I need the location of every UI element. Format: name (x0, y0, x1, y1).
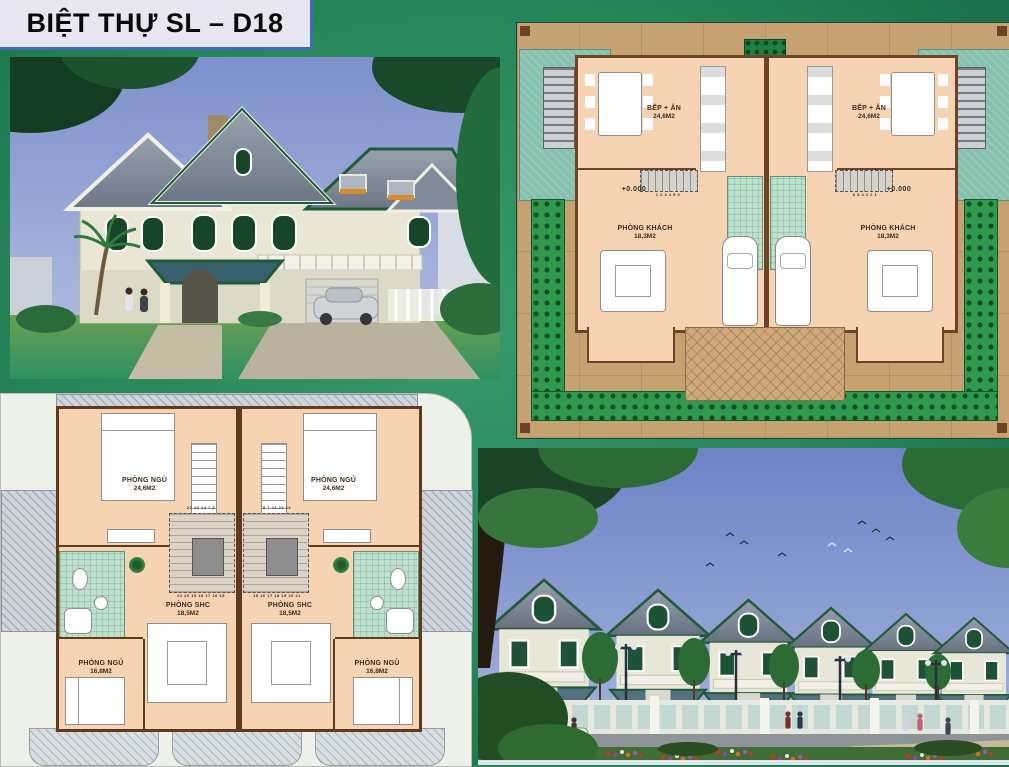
master-bedroom-label: PHÒNG NGỦ 24,6M2 (286, 473, 381, 497)
wall (335, 637, 419, 639)
sink-icon (370, 596, 384, 610)
villa-exterior-illustration (10, 57, 500, 379)
bathroom (59, 551, 125, 639)
garage-car-icon (775, 236, 811, 326)
roof-wing-right (417, 490, 473, 632)
fence-post (997, 423, 1007, 433)
toilet-icon (72, 568, 88, 590)
sofa-set-icon (600, 250, 666, 312)
entry-porch-right (856, 327, 944, 363)
entry-porch-left (587, 327, 675, 363)
kitchen-room-label: BẾP + ĂN 24,6M2 (831, 100, 907, 126)
toilet-icon (390, 568, 406, 590)
hedge-left (531, 199, 565, 393)
dining-chairs-icon (585, 74, 595, 132)
wall (143, 639, 145, 729)
stair-step-numbers: 22 23 24 7 8 (169, 505, 233, 510)
balcony-center (172, 728, 302, 766)
dresser-icon (107, 529, 155, 543)
floor-level-label: +0.000 (604, 186, 664, 193)
kitchen-counter-icon (700, 66, 726, 172)
villa-exterior-render (10, 57, 500, 379)
wall (299, 545, 419, 547)
stairwell-icon (169, 513, 235, 593)
second-bedroom-label: PHÒNG NGỦ 16,8M2 (335, 657, 419, 679)
ground-unit-left: BẾP + ĂN 24,6M2 1 2 3 4 5 6 +0.000 PHÒNG… (575, 55, 767, 333)
porch-column (160, 283, 170, 323)
stair-step-numbers: 21 20 19 18 17 16 15 (169, 593, 233, 598)
ground-floor-plan: BẾP + ĂN 24,6M2 1 2 3 4 5 6 +0.000 PHÒNG… (516, 22, 1009, 439)
stairwell-icon (243, 513, 309, 593)
stair-core (192, 538, 224, 576)
wall (59, 545, 179, 547)
hedge-right (964, 199, 998, 393)
wall (333, 639, 335, 729)
living-room-label: PHÒNG KHÁCH 18,3M2 (602, 222, 688, 244)
entry-arch (182, 269, 218, 323)
bed-icon (65, 677, 125, 725)
family-room-label: PHÒNG SHC 18,5M2 (245, 599, 335, 621)
dresser-icon (323, 529, 371, 543)
ground-unit-right: BẾP + ĂN 24,6M2 6 5 4 3 2 1 +0.000 PHÒNG… (766, 55, 958, 333)
stair-core (266, 538, 298, 576)
fence-post (520, 423, 530, 433)
kitchen-room-label: BẾP + ĂN 24,6M2 (626, 100, 702, 126)
balcony-right (315, 728, 445, 766)
garage-car-icon (722, 236, 758, 326)
sofa-set-icon (147, 623, 227, 703)
upper-unit-right: PHÒNG NGỦ 24,6M2 8 7 24 23 22 15 16 17 1… (239, 406, 422, 732)
floor-level-label: +0.000 (869, 186, 929, 193)
kitchen-counter-icon (807, 66, 833, 172)
second-bedroom-label: PHÒNG NGỦ 16,8M2 (59, 657, 143, 679)
driveway (685, 327, 845, 401)
shower-icon (386, 608, 414, 634)
bed-icon (353, 677, 413, 725)
dining-chairs-icon (938, 74, 948, 132)
upper-floor-plan: PHÒNG NGỦ 24,6M2 22 23 24 7 8 21 20 19 1… (0, 393, 472, 767)
wall (59, 637, 143, 639)
street-view-render (478, 448, 1009, 765)
fence-post (520, 26, 530, 36)
bottom-strip (478, 760, 1009, 765)
stair-step-numbers: 8 7 24 23 22 (245, 505, 309, 510)
site-stairs-right-icon (954, 67, 986, 149)
upper-unit-left: PHÒNG NGỦ 24,6M2 22 23 24 7 8 21 20 19 1… (56, 406, 239, 732)
plant-icon (129, 557, 145, 573)
site-stairs-left-icon (543, 67, 575, 149)
sofa-set-icon (867, 250, 933, 312)
bathroom (353, 551, 419, 639)
page-title: BIỆT THỰ SL – D18 (27, 8, 284, 39)
living-room-label: PHÒNG KHÁCH 18,3M2 (845, 222, 931, 244)
gable-window (235, 149, 251, 175)
family-room-label: PHÒNG SHC 18,5M2 (143, 599, 233, 621)
sink-icon (94, 596, 108, 610)
master-bedroom-label: PHÒNG NGỦ 24,6M2 (97, 473, 192, 497)
roof-wing-left (1, 490, 57, 632)
stair-step-numbers: 15 16 17 18 19 20 21 (245, 593, 309, 598)
fence-post (997, 26, 1007, 36)
plant-icon (333, 557, 349, 573)
balcony-left (29, 728, 159, 766)
sofa-set-icon (251, 623, 331, 703)
shower-icon (64, 608, 92, 634)
street-view-illustration (478, 448, 1009, 765)
presentation-slide: { "page": { "title": "BIỆT THỰ SL – D18"… (0, 0, 1009, 765)
page-title-block: BIỆT THỰ SL – D18 (0, 0, 313, 50)
